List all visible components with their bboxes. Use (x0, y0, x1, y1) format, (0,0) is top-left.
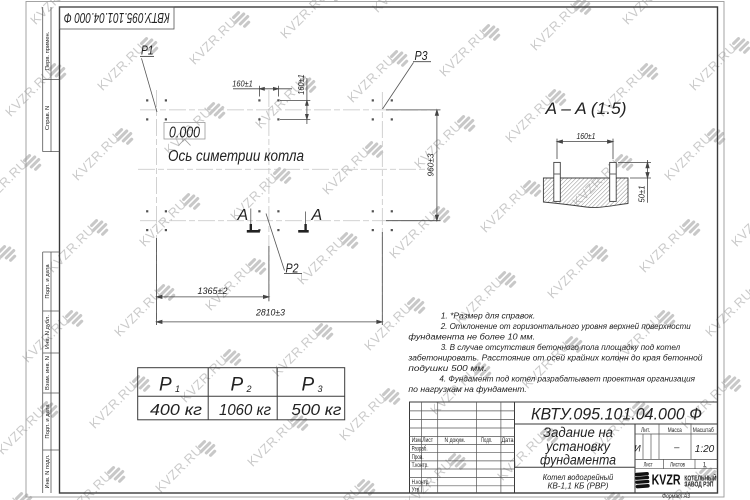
svg-text:подушки 500 мм.: подушки 500 мм. (408, 363, 487, 373)
svg-text:P3: P3 (415, 48, 429, 63)
svg-text:P1: P1 (141, 43, 154, 58)
svg-text:A – A (1:5): A – A (1:5) (544, 100, 626, 118)
svg-text:Дата: Дата (502, 437, 514, 444)
svg-text:KVZR.RU: KVZR.RU (702, 286, 750, 339)
svg-text:KVZR.RU: KVZR.RU (686, 40, 739, 93)
svg-text:KVZR.RU: KVZR.RU (94, 40, 147, 93)
svg-text:KVZR.RU: KVZR.RU (344, 52, 397, 105)
svg-text:КВТУ.095.101.04.000 Ф: КВТУ.095.101.04.000 Ф (64, 9, 170, 25)
svg-text:KVZR.RU: KVZR.RU (411, 118, 464, 171)
svg-text:Н.контр.: Н.контр. (412, 479, 430, 486)
svg-text:3: 3 (318, 384, 323, 394)
svg-text:P2: P2 (286, 260, 300, 275)
svg-text:Справ. N: Справ. N (45, 106, 51, 130)
svg-text:1: 1 (703, 462, 707, 469)
svg-text:P: P (159, 375, 172, 396)
svg-text:A: A (311, 207, 323, 224)
svg-text:Подп. и дата: Подп. и дата (45, 404, 51, 439)
svg-text:160±1: 160±1 (232, 79, 253, 89)
svg-text:Ось симетрии котла: Ось симетрии котла (168, 148, 304, 165)
svg-text:Подп. и дата: Подп. и дата (45, 264, 51, 299)
svg-text:Взам. инв. N: Взам. инв. N (45, 356, 51, 390)
svg-text:4. Фундамент под котел разраба: 4. Фундамент под котел разрабатывает про… (439, 374, 695, 384)
svg-text:Изм.Лист: Изм.Лист (412, 437, 433, 444)
svg-text:KVZR.RU: KVZR.RU (527, 0, 580, 53)
svg-text:400 кг: 400 кг (150, 402, 202, 419)
svg-text:3. В случае отсутствия бетонно: 3. В случае отсутствия бетонного пола пл… (441, 342, 681, 352)
svg-text:1365±2: 1365±2 (198, 286, 228, 296)
svg-text:Перв. примен.: Перв. примен. (45, 31, 51, 70)
svg-text:Пров.: Пров. (412, 454, 424, 461)
svg-text:KVZR.RU: KVZR.RU (369, 0, 422, 16)
svg-text:Масса: Масса (668, 427, 682, 434)
svg-text:Масштаб: Масштаб (693, 427, 714, 434)
svg-text:50±1: 50±1 (637, 185, 647, 202)
svg-text:2: 2 (246, 384, 252, 394)
svg-text:KVZR.RU: KVZR.RU (0, 404, 48, 457)
svg-text:Подп.: Подп. (481, 437, 492, 444)
svg-text:KVZR.RU: KVZR.RU (361, 300, 414, 353)
svg-text:KVZR.RU: KVZR.RU (86, 378, 139, 431)
svg-text:KVZR.RU: KVZR.RU (386, 208, 439, 261)
svg-text:KVZR.RU: KVZR.RU (227, 170, 280, 223)
svg-text:N докум.: N докум. (445, 437, 466, 444)
svg-text:Лит.: Лит. (641, 427, 650, 434)
svg-text:1060 кг: 1060 кг (219, 402, 271, 419)
svg-text:КВТУ.095.101.04.000 Ф: КВТУ.095.101.04.000 Ф (531, 405, 702, 423)
svg-text:фундамента: фундамента (540, 452, 616, 467)
svg-text:KVZR.RU: KVZR.RU (336, 390, 389, 443)
svg-text:И: И (634, 443, 641, 453)
svg-text:Листов: Листов (670, 462, 686, 469)
svg-text:2. Отклонение от горизонтально: 2. Отклонение от горизонтального уровня … (440, 321, 691, 331)
svg-text:KVZR.RU: KVZR.RU (636, 222, 689, 275)
svg-text:1:20: 1:20 (695, 443, 715, 455)
svg-text:1. *Размер для справок.: 1. *Размер для справок. (441, 310, 536, 320)
svg-text:фундамента не более 10 мм.: фундамента не более 10 мм. (408, 332, 535, 342)
svg-text:забетонировать. Расстояние от: забетонировать. Расстояние от осей крайн… (407, 353, 702, 363)
svg-text:A: A (237, 207, 249, 224)
svg-text:КВ-1,1 КБ (РВР): КВ-1,1 КБ (РВР) (548, 481, 609, 491)
svg-text:Т.контр.: Т.контр. (412, 462, 429, 469)
svg-text:160±1: 160±1 (296, 74, 306, 95)
svg-text:500 кг: 500 кг (291, 402, 341, 419)
svg-text:KVZR.RU: KVZR.RU (0, 248, 6, 301)
svg-text:KVZR.RU: KVZR.RU (728, 196, 750, 249)
svg-text:KVZR.RU: KVZR.RU (186, 14, 239, 67)
svg-text:Разраб.: Разраб. (412, 445, 428, 453)
svg-text:KVZR.RU: KVZR.RU (152, 442, 205, 495)
svg-text:KVZR.RU: KVZR.RU (177, 352, 230, 405)
svg-text:KVZR.RU: KVZR.RU (319, 144, 372, 197)
svg-text:Лист: Лист (644, 462, 653, 469)
svg-text:KVZR.RU: KVZR.RU (544, 248, 597, 301)
svg-text:KVZR: KVZR (652, 471, 681, 488)
svg-text:KVZR.RU: KVZR.RU (661, 130, 714, 183)
svg-text:KVZR.RU: KVZR.RU (436, 26, 489, 79)
svg-text:2810±3: 2810±3 (255, 307, 285, 317)
svg-text:1: 1 (175, 384, 180, 394)
svg-text:Утв.: Утв. (412, 487, 421, 494)
svg-text:KVZR.RU: KVZR.RU (136, 196, 189, 249)
svg-text:–: – (673, 442, 680, 453)
svg-text:960±3: 960±3 (426, 153, 436, 176)
svg-text:ЗАВОД РЭП: ЗАВОД РЭП (684, 482, 713, 489)
svg-text:Инв. N подл.: Инв. N подл. (45, 454, 51, 488)
svg-text:KVZR.RU: KVZR.RU (477, 182, 530, 235)
svg-text:P: P (302, 375, 315, 396)
svg-text:KVZR.RU: KVZR.RU (277, 0, 330, 42)
svg-text:P: P (231, 375, 244, 396)
svg-text:по нагрузкам на фундамент.: по нагрузкам на фундамент. (408, 384, 526, 394)
svg-text:KVZR.RU: KVZR.RU (61, 468, 114, 500)
svg-text:KVZR.RU: KVZR.RU (44, 222, 97, 275)
svg-text:160±1: 160±1 (577, 131, 596, 141)
svg-text:Формат А3: Формат А3 (662, 493, 690, 500)
svg-text:Инв. N дубл.: Инв. N дубл. (45, 315, 51, 349)
svg-text:KVZR.RU: KVZR.RU (619, 0, 672, 28)
svg-text:KVZR.RU: KVZR.RU (244, 416, 297, 469)
svg-text:Задание на: Задание на (543, 425, 613, 440)
svg-text:KVZR.RU: KVZR.RU (69, 130, 122, 183)
svg-text:KVZR.RU: KVZR.RU (294, 234, 347, 287)
